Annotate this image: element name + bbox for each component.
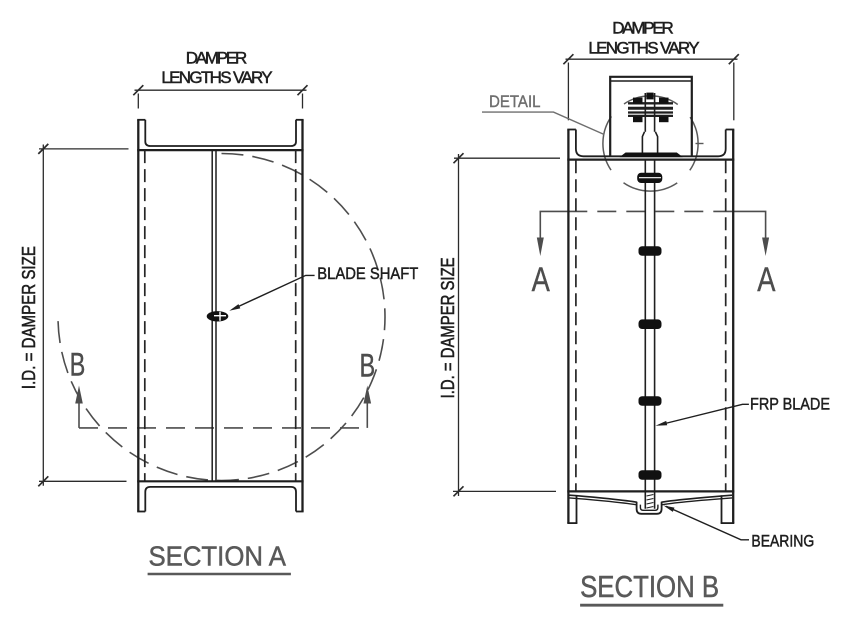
- svg-text:DETAIL: DETAIL: [489, 92, 541, 111]
- svg-text:LENGTHS VARY: LENGTHS VARY: [161, 68, 272, 87]
- svg-text:I.D. = DAMPER SIZE: I.D. = DAMPER SIZE: [19, 246, 39, 389]
- svg-text:I.D. = DAMPER SIZE: I.D. = DAMPER SIZE: [438, 257, 458, 398]
- svg-text:BLADE SHAFT: BLADE SHAFT: [317, 264, 418, 283]
- svg-text:LENGTHS VARY: LENGTHS VARY: [588, 39, 699, 58]
- svg-text:SECTION B: SECTION B: [580, 570, 719, 604]
- svg-text:DAMPER: DAMPER: [612, 18, 674, 37]
- svg-text:A: A: [757, 261, 775, 299]
- svg-text:SECTION A: SECTION A: [148, 540, 286, 571]
- svg-text:B: B: [70, 346, 86, 382]
- svg-text:DAMPER: DAMPER: [186, 48, 248, 67]
- svg-text:B: B: [360, 347, 376, 383]
- svg-text:A: A: [532, 261, 550, 299]
- svg-text:FRP BLADE: FRP BLADE: [750, 395, 830, 414]
- svg-text:BEARING: BEARING: [751, 532, 814, 551]
